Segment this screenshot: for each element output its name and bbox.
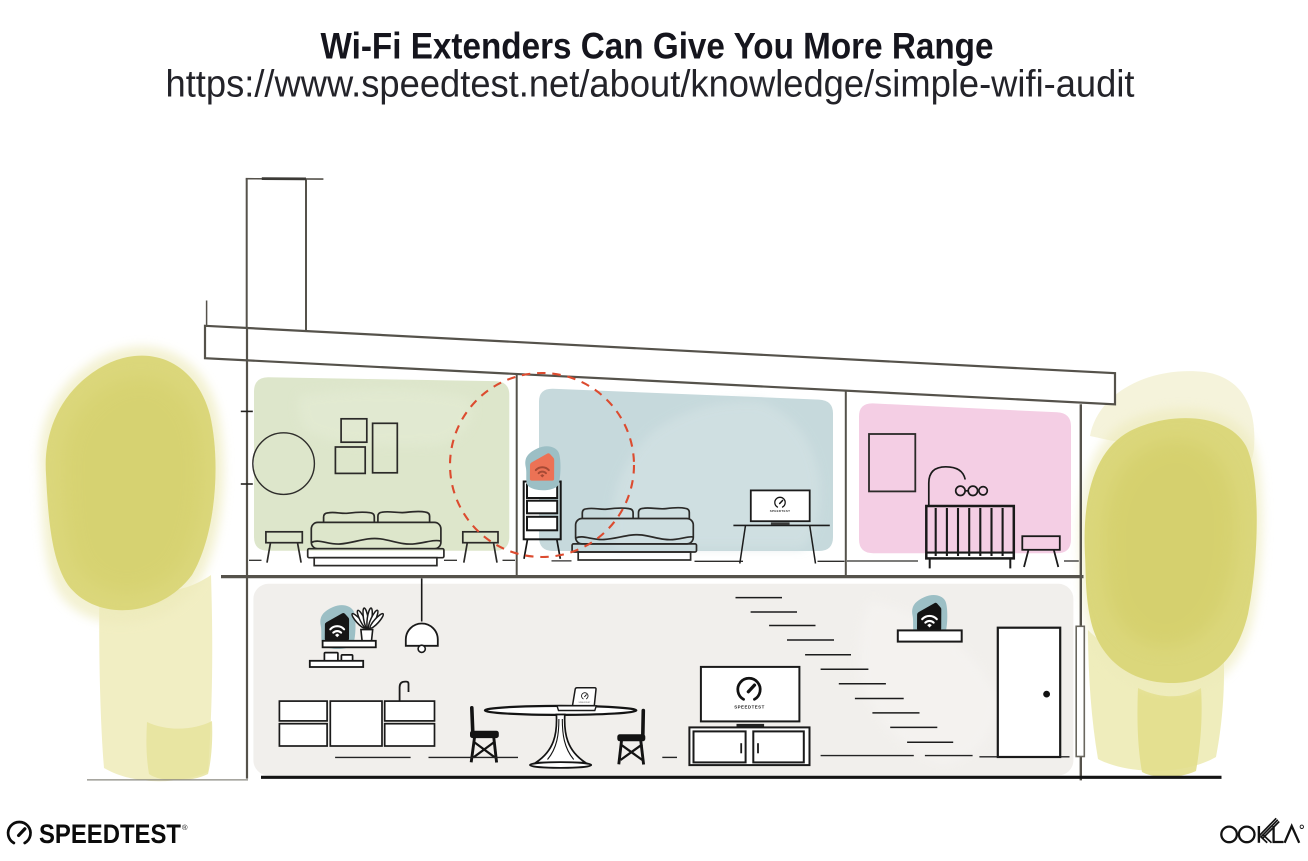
svg-text:SPEEDTEST: SPEEDTEST (39, 819, 181, 849)
svg-text:®: ® (182, 823, 188, 832)
svg-text:https://www.speedtest.net/abou: https://www.speedtest.net/about/knowledg… (166, 64, 1135, 106)
svg-text:Wi-Fi Extenders Can Give You M: Wi-Fi Extenders Can Give You More Range (321, 25, 994, 67)
svg-text:SPEEDTEST: SPEEDTEST (579, 702, 592, 704)
svg-text:SPEEDTEST: SPEEDTEST (734, 705, 765, 710)
svg-text:SPEEDTEST: SPEEDTEST (770, 509, 791, 513)
